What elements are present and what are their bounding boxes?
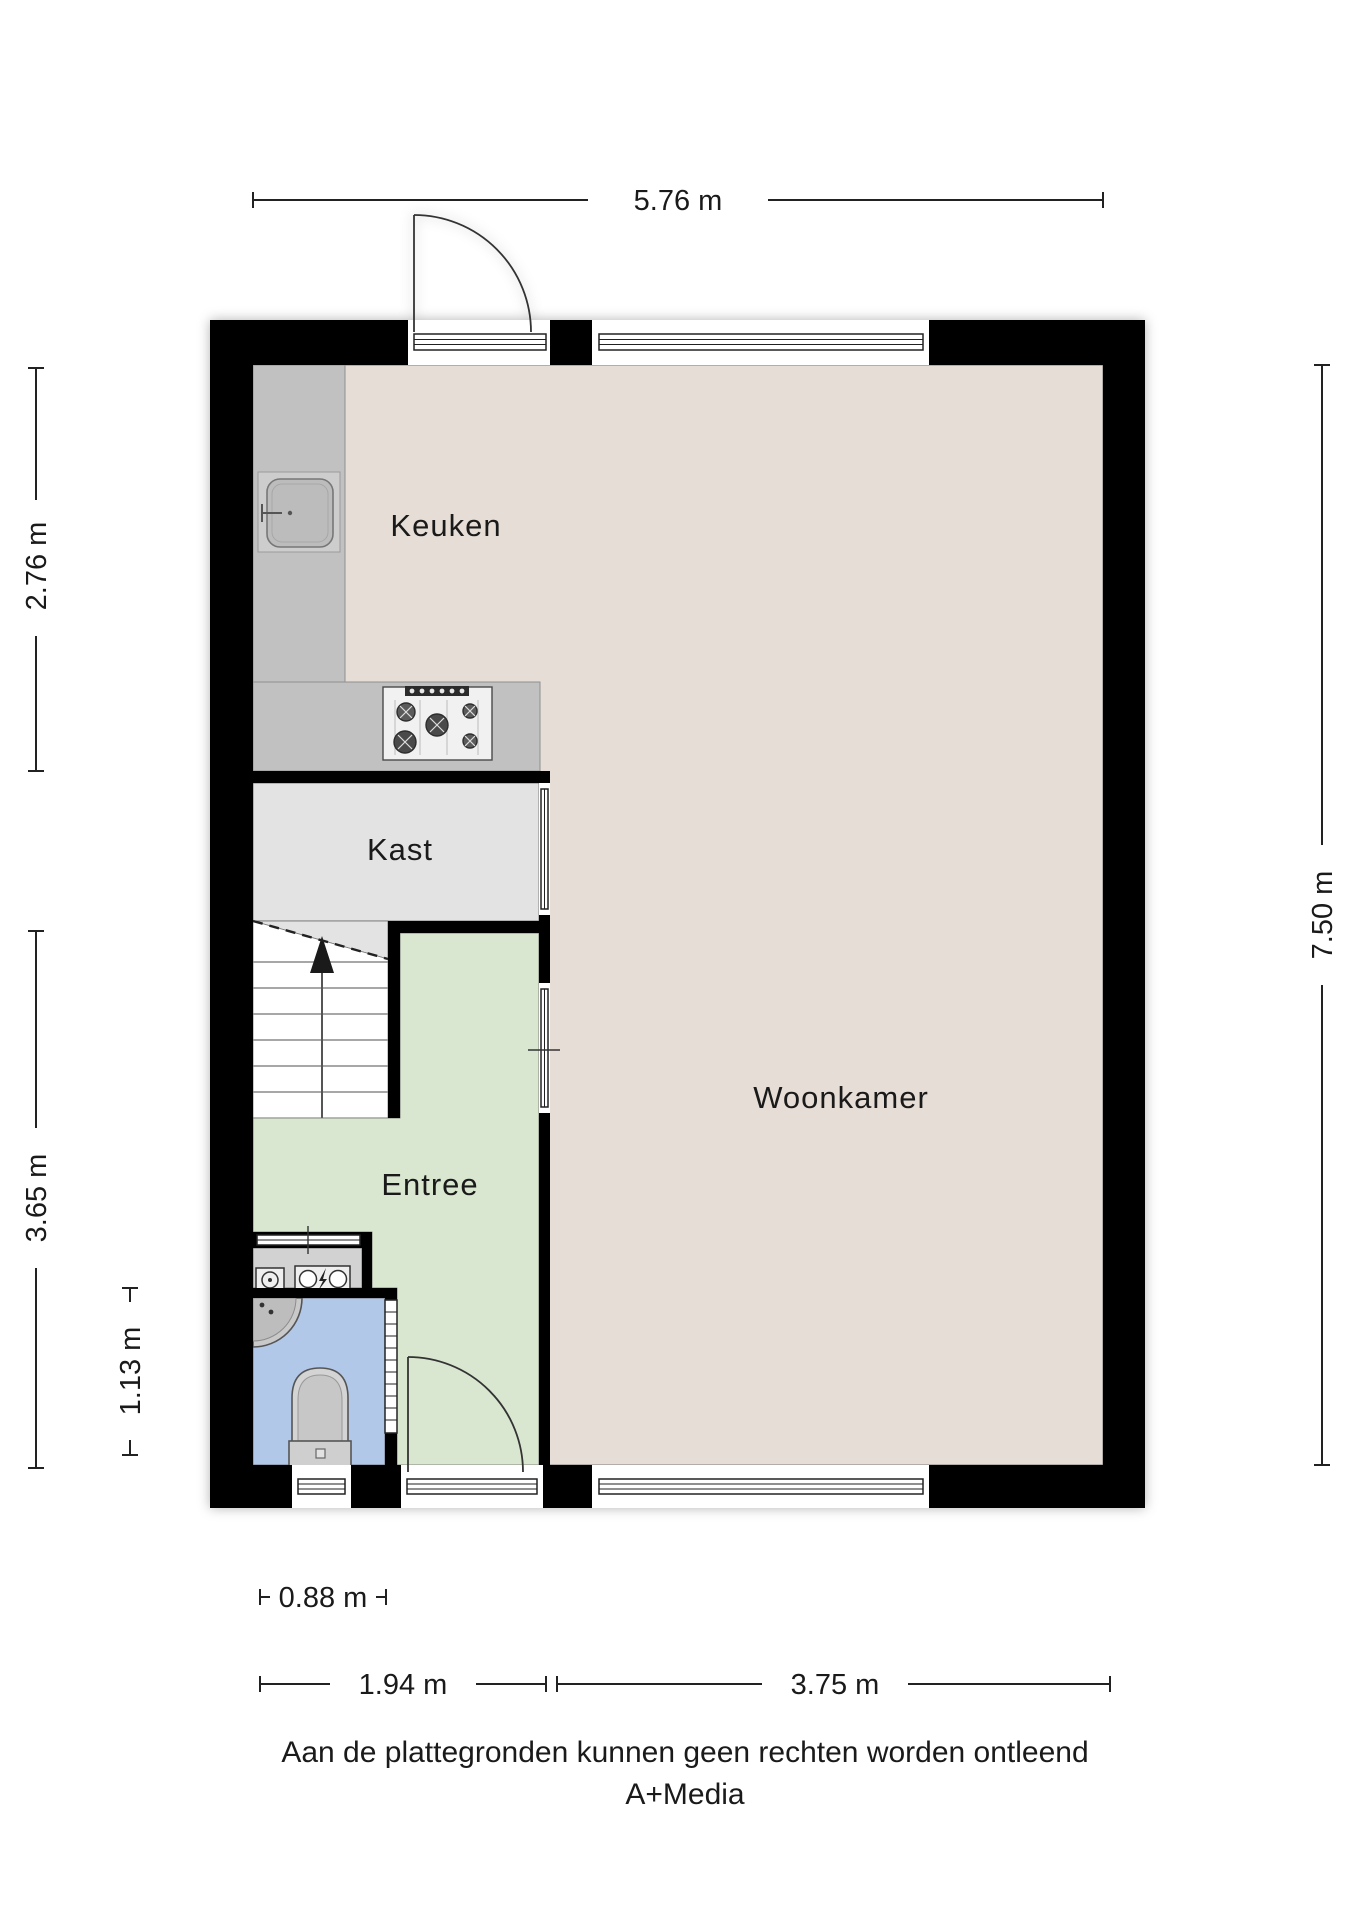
meter-cupboard — [253, 1248, 362, 1292]
footer-disclaimer: Aan de plattegronden kunnen geen rechten… — [281, 1736, 1088, 1769]
window-top-livingroom — [592, 320, 929, 365]
room-label-entree: Entree — [381, 1167, 478, 1202]
toilet-icon — [289, 1368, 351, 1467]
dimension-bottom-right: 3.75 m — [557, 1669, 1110, 1701]
kitchen-sink-icon — [258, 472, 340, 552]
top-door-swing-arc — [414, 215, 531, 332]
dimension-bottom-small-label: 0.88 m — [279, 1582, 368, 1614]
wall-right — [1103, 320, 1145, 1508]
top-door — [408, 215, 550, 365]
stove-icon — [383, 686, 492, 760]
wall-left — [210, 320, 253, 1508]
dimension-left-middle-label: 3.65 m — [21, 1154, 53, 1243]
wall-kast-entree — [388, 921, 550, 933]
footer-brand: A+Media — [625, 1778, 745, 1811]
room-label-kast: Kast — [367, 832, 433, 867]
dimension-bottom-small: 0.88 m — [260, 1582, 386, 1614]
room-label-keuken: Keuken — [390, 508, 501, 543]
window-toilet — [292, 1465, 351, 1508]
wall-kitchen-kast — [210, 771, 550, 783]
dimension-bottom-left-label: 1.94 m — [359, 1669, 448, 1701]
dimension-top: 5.76 m — [253, 185, 1103, 217]
wall-toilet-top — [253, 1288, 397, 1298]
floorplan-page: Keuken Kast Woonkamer Entree 5.76 m 2.76… — [0, 0, 1358, 1920]
dimension-right: 7.50 m — [1307, 365, 1339, 1465]
wall-stairwell — [388, 921, 400, 1118]
floorplan-drawing: Keuken Kast Woonkamer Entree — [210, 215, 1145, 1508]
toilet-room — [253, 1298, 385, 1467]
dimension-bottom-right-label: 3.75 m — [791, 1669, 880, 1701]
window-bottom-livingroom — [592, 1465, 929, 1508]
window-interior-kast — [539, 783, 550, 915]
dimension-left-top: 2.76 m — [21, 368, 53, 771]
dimension-top-label: 5.76 m — [634, 185, 723, 217]
dimension-left-top-label: 2.76 m — [21, 522, 53, 611]
dimension-right-label: 7.50 m — [1307, 871, 1339, 960]
room-label-woonkamer: Woonkamer — [753, 1080, 929, 1115]
floorplan-canvas: Keuken Kast Woonkamer Entree 5.76 m 2.76… — [0, 0, 1358, 1920]
dimension-left-bottom: 1.13 m — [115, 1288, 147, 1455]
toilet-door — [385, 1300, 397, 1433]
dimension-left-bottom-label: 1.13 m — [115, 1327, 147, 1416]
wall-meter-right — [362, 1232, 372, 1288]
dimension-left-middle: 3.65 m — [21, 931, 53, 1468]
dimension-bottom-left: 1.94 m — [260, 1669, 546, 1701]
